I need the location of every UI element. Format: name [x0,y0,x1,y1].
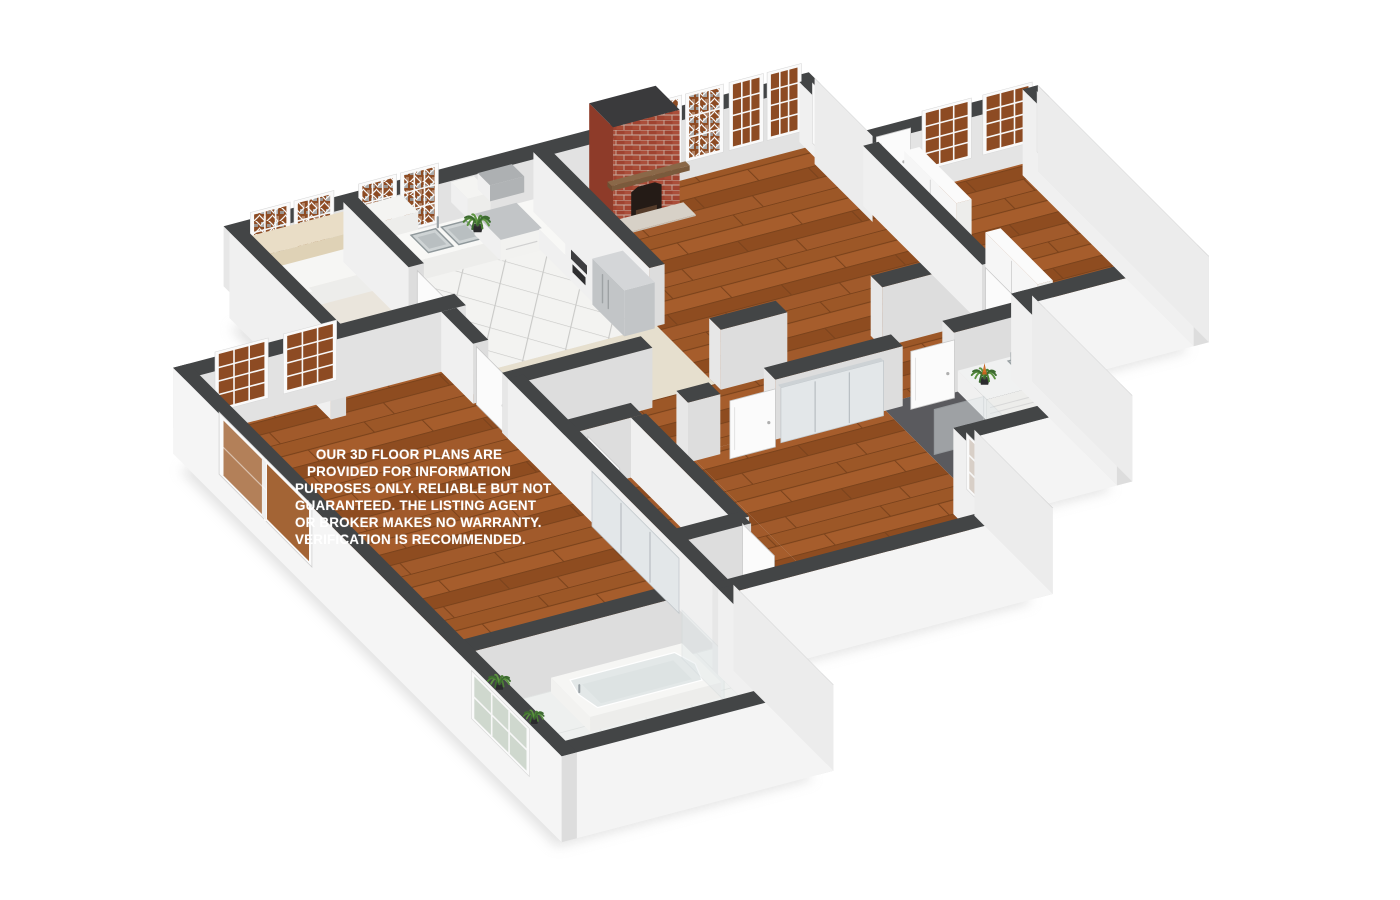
living-window [767,64,801,141]
disclaimer-watermark: OUR 3D FLOOR PLANS ARE PROVIDED FOR INFO… [295,446,523,548]
disclaimer-line: OUR 3D FLOOR PLANS ARE [295,446,523,463]
disclaimer-line: PROVIDED FOR INFORMATION [295,463,523,480]
disclaimer-line: GUARANTEED. THE LISTING AGENT [295,497,523,514]
disclaimer-line: PURPOSES ONLY. RELIABLE BUT NOT [295,480,523,497]
fireplace [589,86,679,223]
hallbath-door [911,340,955,410]
midbr-door [730,389,776,459]
floor-plan-page: OUR 3D FLOOR PLANS ARE PROVIDED FOR INFO… [0,0,1400,900]
floor-plan-3d-render [0,0,1400,900]
disclaimer-line: VERIFICATION IS RECOMMENDED. [295,531,523,548]
living-window [729,74,763,151]
living-ornate-window [685,84,723,162]
disclaimer-line: OR BROKER MAKES NO WARRANTY. [295,514,523,531]
